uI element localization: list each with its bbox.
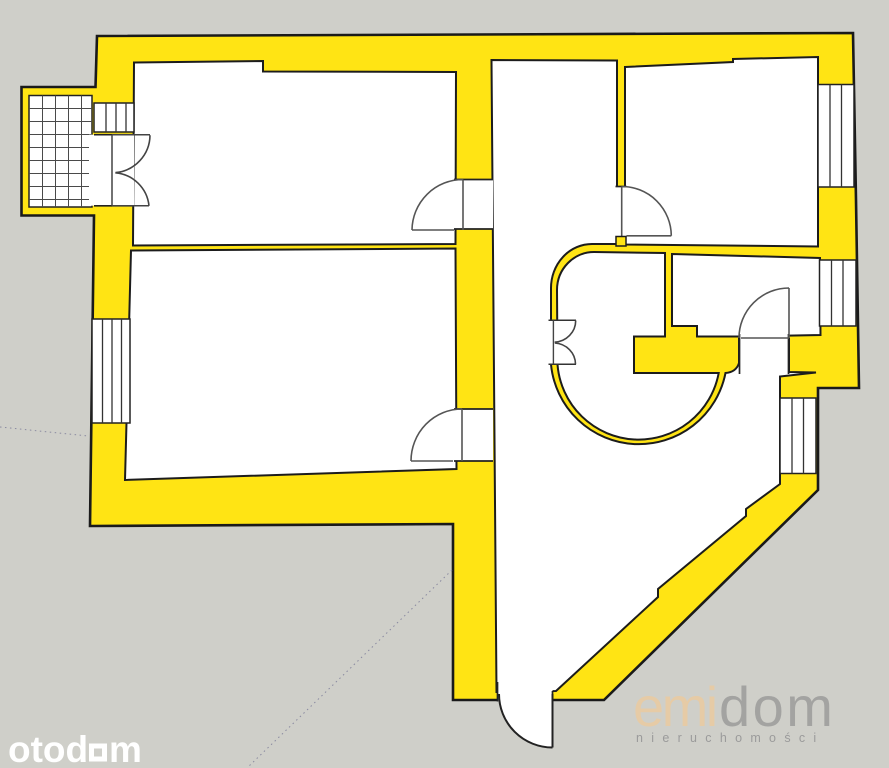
svg-text:otod: otod (8, 729, 88, 768)
svg-text:emi: emi (633, 675, 716, 738)
svg-text:nieruchomości: nieruchomości (636, 731, 825, 745)
svg-text:m: m (109, 729, 142, 768)
svg-text:dom: dom (719, 675, 835, 738)
